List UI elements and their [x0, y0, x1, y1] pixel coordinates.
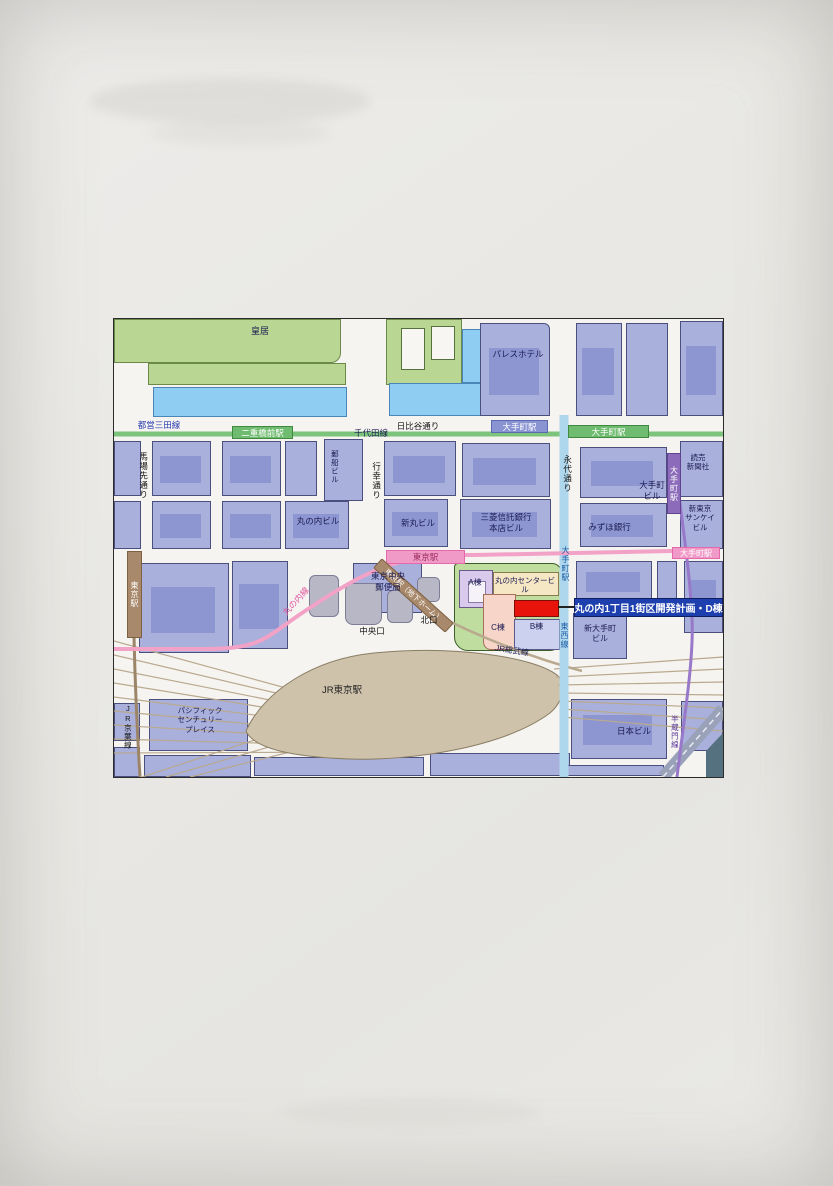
yomiuri-label: 読売 新聞社 — [680, 453, 716, 472]
marunouchi-bldg-label: 丸の内ビル — [295, 516, 341, 527]
otemachi-mita-station-badge: 大手町駅 — [568, 425, 649, 438]
callout-leader-line — [558, 606, 575, 608]
north-exit-label: 北口 — [414, 615, 444, 626]
tokyo-station-marunouchi-badge: 東京駅 — [386, 550, 465, 564]
marunouchi-center-bldg-label: 丸の内センタービル — [493, 576, 557, 595]
map-labels-layer: 皇居 パレスホテル 都営三田線 千代田線 日比谷通り 馬場先通り 行幸通り 永代… — [114, 319, 723, 777]
otemachi-bldg-label: 大手町 ビル — [637, 480, 667, 501]
otemachi-chiyoda-station-badge: 大手町駅 — [491, 420, 548, 433]
otemachi-marunouchi-station-badge: 大手町駅 — [672, 547, 720, 559]
pacific-century-place-label: パシフィック センチュリー プレイス — [154, 706, 246, 734]
toei-mita-line-label: 都営三田線 — [134, 420, 184, 431]
gyoko-dori-label: 行幸通り — [371, 462, 382, 500]
page-artifact — [280, 1098, 540, 1126]
palace-hotel-label: パレスホテル — [488, 349, 548, 360]
jr-keiyo-line-label: JR京葉線 — [123, 704, 132, 750]
jr-sobu-line-label: JR総武線 — [494, 643, 529, 658]
hanzomon-line-label: 半蔵門線 — [670, 715, 679, 749]
mizuho-bank-label: みずほ銀行 — [587, 522, 632, 533]
hibiya-dori-label: 日比谷通り — [394, 421, 442, 432]
building-c-label: C棟 — [481, 623, 515, 633]
page-artifact — [150, 120, 330, 146]
development-callout: 丸の内1丁目1街区開発計画・D棟 — [574, 598, 723, 617]
tokyo-station-keiyo-badge: 東京駅 — [127, 551, 142, 638]
central-exit-label: 中央口 — [352, 626, 392, 637]
tozai-line-label: 東西線 — [559, 622, 569, 649]
nijubashimae-station-badge: 二重橋前駅 — [232, 426, 293, 439]
chiyoda-line-label: 千代田線 — [351, 428, 391, 439]
jr-tokyo-station-label: JR東京駅 — [316, 685, 368, 697]
marunouchi-line-label: 丸の内線 — [281, 585, 312, 617]
yusen-bldg-label: 郵船ビル — [330, 450, 339, 484]
building-a-label: A棟 — [460, 578, 490, 588]
imperial-palace-label: 皇居 — [240, 326, 280, 337]
eitai-dori-label: 永代通り — [562, 455, 573, 493]
building-b-label: B棟 — [514, 622, 559, 632]
page-artifact — [90, 78, 370, 124]
scanned-page: { "page": { "description": "Scanned broc… — [0, 0, 833, 1186]
shinmaru-bldg-label: 新丸ビル — [397, 518, 439, 529]
nippon-bldg-label: 日本ビル — [612, 726, 656, 737]
mitsubishi-trust-label: 三菱信託銀行 本店ビル — [464, 512, 548, 533]
central-post-office-label: 東京中央 郵便局 — [356, 571, 420, 592]
area-map: 皇居 パレスホテル 都営三田線 千代田線 日比谷通り 馬場先通り 行幸通り 永代… — [113, 318, 724, 778]
shin-otemachi-bldg-label: 新大手町 ビル — [576, 624, 624, 644]
babasaki-dori-label: 馬場先通り — [138, 452, 149, 500]
sankei-bldg-label: 新東京 サンケイ ビル — [679, 504, 721, 532]
otemachi-tozai-station-label: 大手町駅 — [560, 546, 570, 582]
